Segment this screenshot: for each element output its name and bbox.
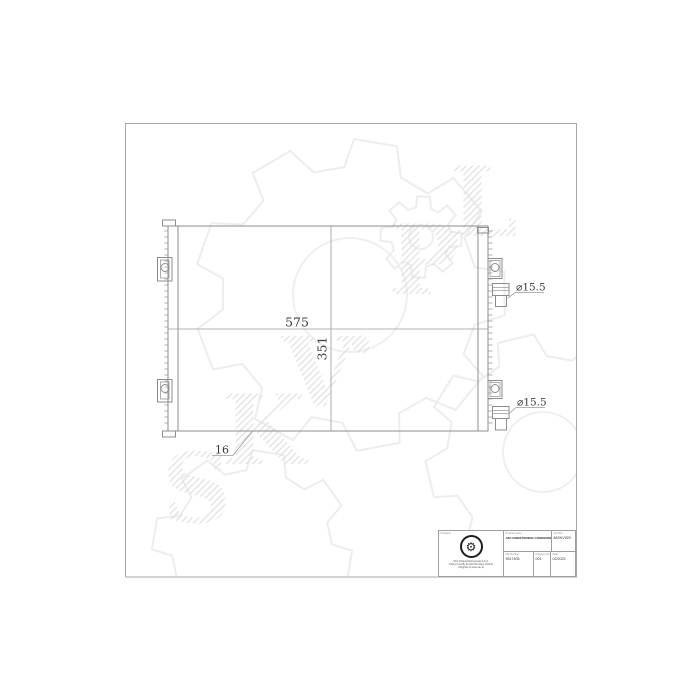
symbol-cell: Symbol 86SKV929 — [552, 531, 575, 551]
gear-hub-circle — [503, 412, 583, 492]
address-line: info@skv.pl www.skv.pl — [449, 566, 493, 569]
oe-number-cell: OE Number 9517405 — [504, 552, 534, 576]
port-fitting-bottom — [493, 407, 510, 431]
date-value: 02/2023 — [551, 556, 575, 562]
watermark: S K V . P L — [152, 139, 661, 650]
producer-label: Producer — [439, 531, 453, 535]
dimension-depth-label: 16 — [215, 444, 229, 457]
producer-cell: Producer ⚙ SKV Poland Motoryzacja S.K.A.… — [439, 531, 504, 576]
drawing-canvas: S K V . P L — [0, 0, 700, 700]
port-bottom-diameter-label: ⌀15.5 — [517, 397, 547, 409]
diagram-no-label: Diagram No. — [534, 552, 550, 556]
producer-address: SKV Poland Motoryzacja S.K.A. Fabryczna … — [449, 560, 493, 570]
diagram-no-cell: Diagram No. 001 — [534, 552, 551, 576]
drawing-sheet: S K V . P L — [0, 0, 700, 700]
title-block-row-2: OE Number 9517405 Diagram No. 001 Date 0… — [504, 552, 575, 576]
dimension-width-label: 575 — [285, 315, 309, 330]
title-block-fields: Product name AIR CONDITIONING CONDENSER … — [504, 531, 575, 576]
oe-number-value: 9517405 — [504, 556, 533, 562]
watermark-letter: . — [344, 262, 377, 375]
product-name-cell: Product name AIR CONDITIONING CONDENSER — [504, 531, 552, 551]
mounting-bracket-left-bottom — [158, 380, 173, 403]
left-header-tank — [168, 226, 178, 431]
skv-logo-stamp: ⚙ — [460, 535, 483, 558]
gear-icon: ⚙ — [466, 541, 477, 553]
dimension-height-label: 351 — [315, 337, 330, 361]
symbol-value: 86SKV929 — [552, 535, 575, 541]
title-block-row-1: Product name AIR CONDITIONING CONDENSER … — [504, 531, 575, 552]
title-block: Producer ⚙ SKV Poland Motoryzacja S.K.A.… — [438, 530, 576, 577]
mounting-bracket-right-top — [488, 259, 502, 279]
port-fitting-top — [493, 284, 510, 307]
port-top-diameter-label: ⌀15.5 — [516, 282, 546, 294]
product-name-value: AIR CONDITIONING CONDENSER — [504, 535, 551, 541]
diagram-no-value: 001 — [534, 556, 550, 562]
watermark-letter: L — [450, 146, 518, 259]
watermark-text: S K V . P L — [162, 146, 518, 545]
left-tank-top-cap — [163, 220, 176, 226]
mounting-bracket-right-bottom — [488, 381, 502, 399]
date-cell: Date 02/2023 — [551, 552, 575, 576]
